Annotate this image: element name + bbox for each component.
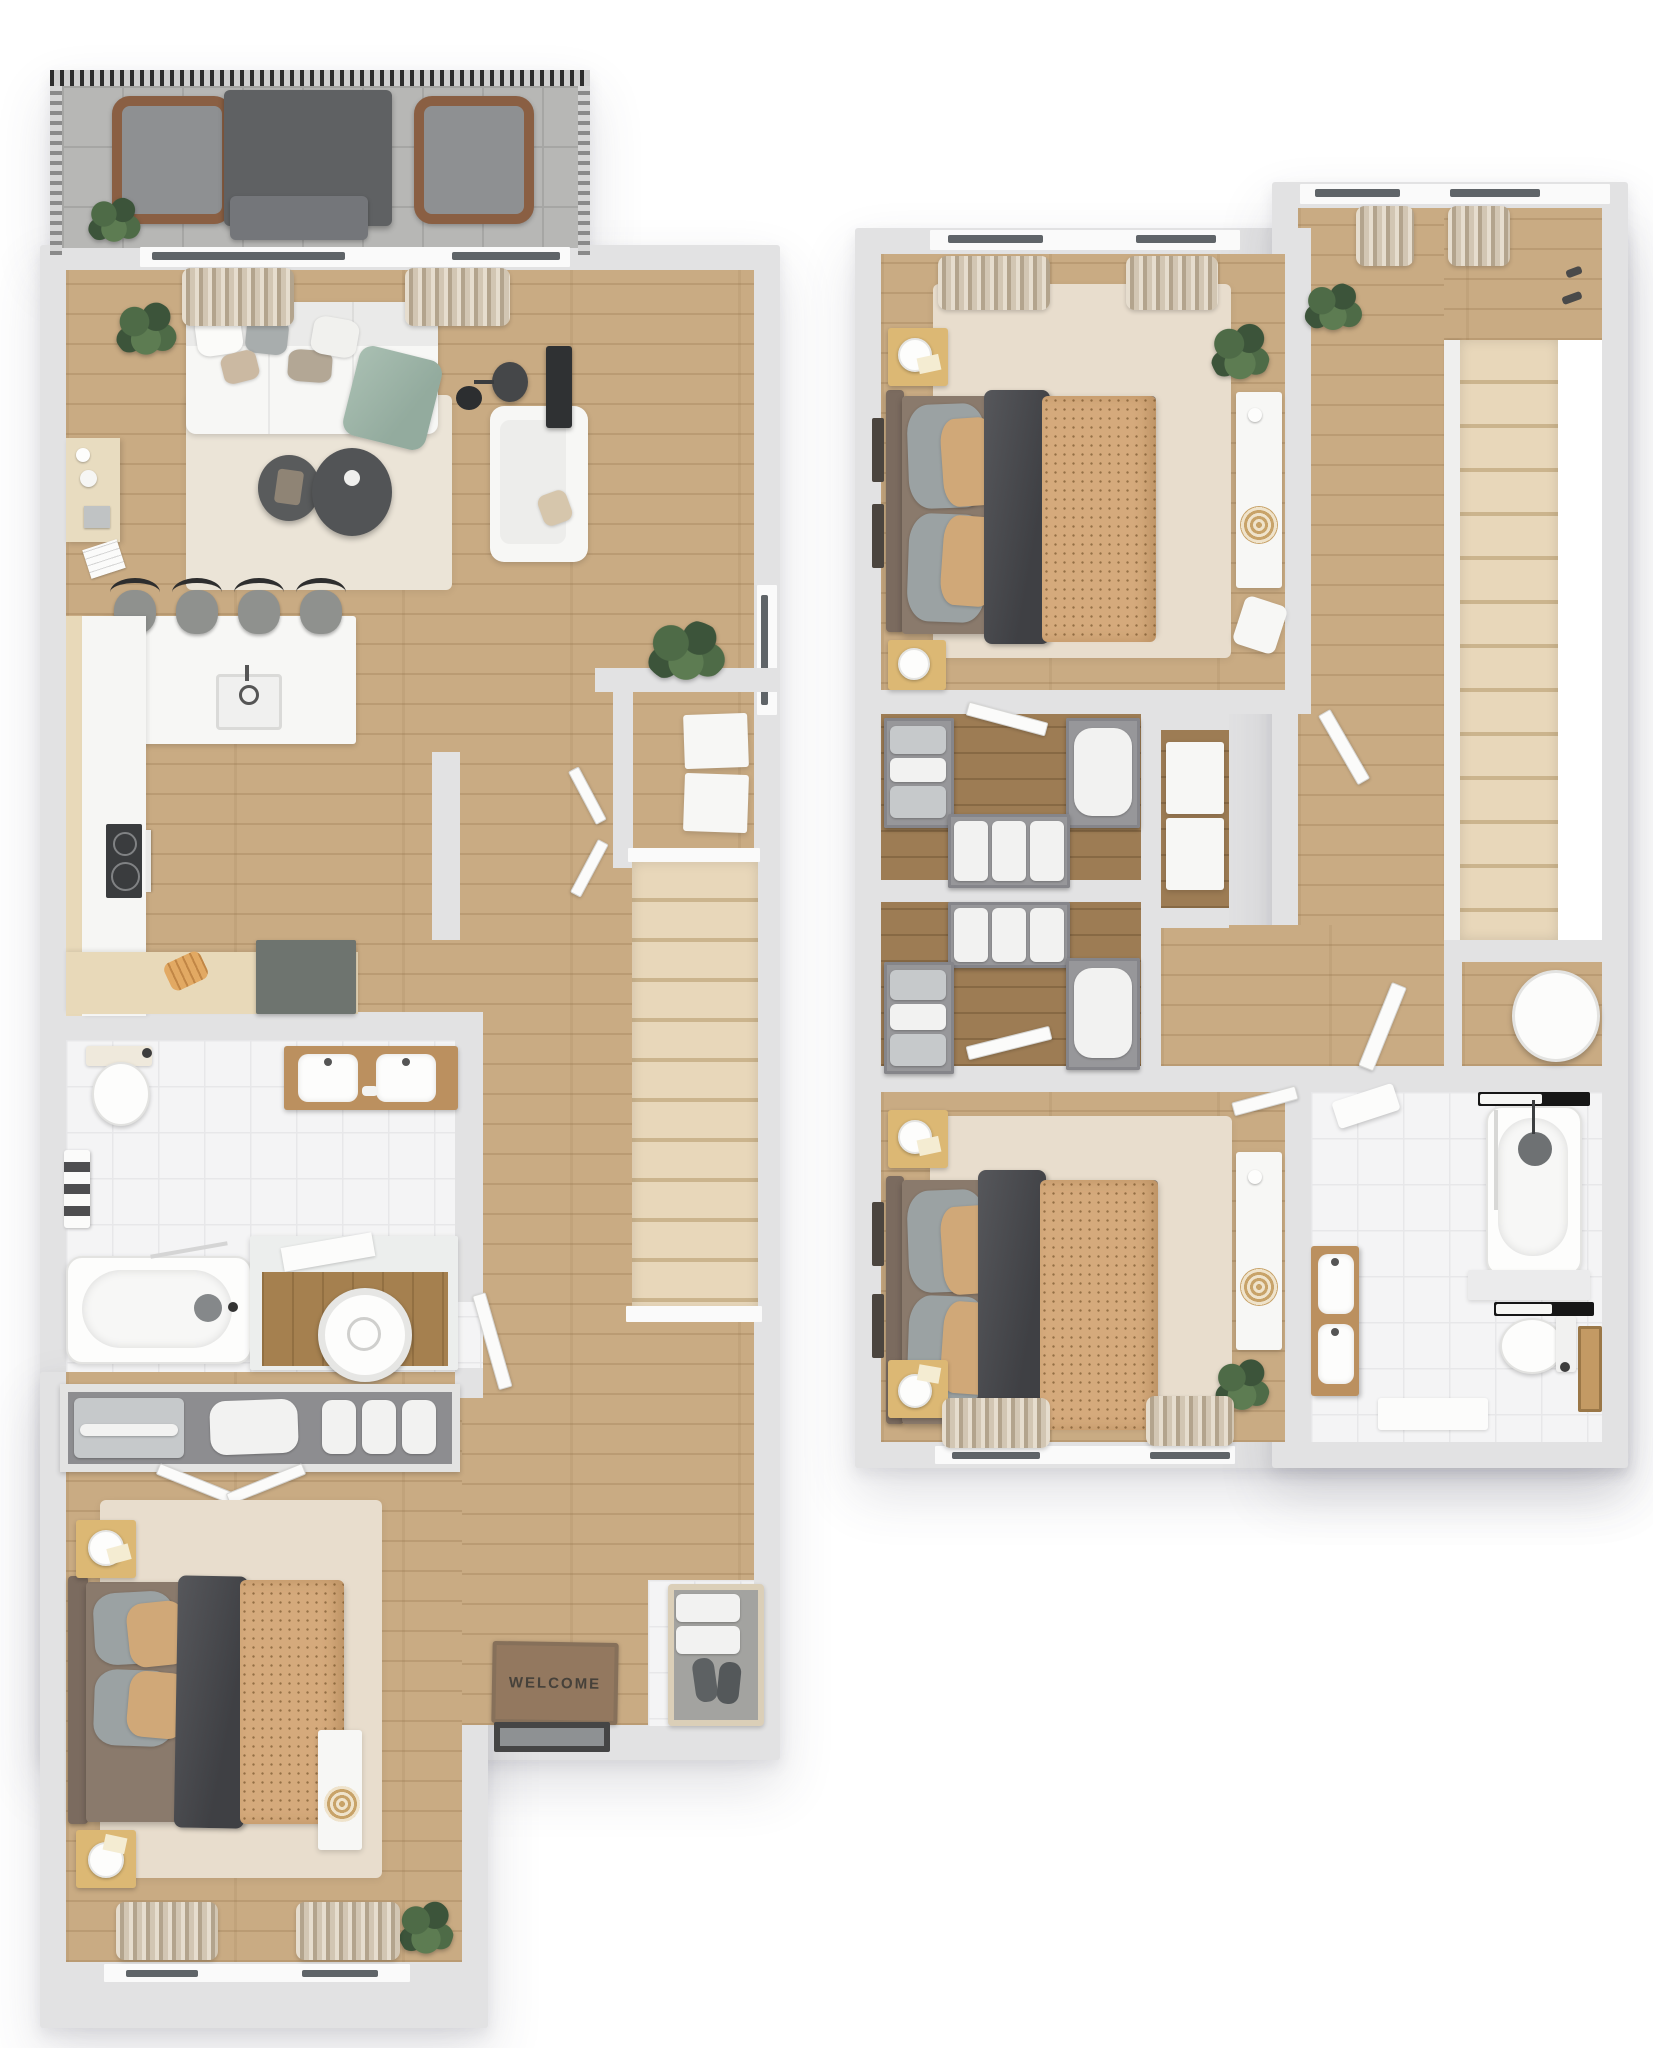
bedroom2-curtain-left	[938, 256, 1050, 310]
bathtub-1	[66, 1256, 252, 1364]
kitchen-faucet-ring	[239, 685, 259, 705]
bedroom2-desk-cup	[1248, 408, 1262, 422]
hallway-plant	[644, 620, 728, 684]
bedroom3-wall-art	[872, 1202, 884, 1266]
nightstand-paper	[917, 354, 942, 374]
towel-on-rail	[1496, 1304, 1552, 1314]
bathtub2-glass-screen	[1494, 1110, 1498, 1210]
stairwell-void	[1558, 340, 1602, 940]
bathroom1-vanity	[284, 1046, 458, 1110]
laundry-cabinet-lid	[281, 1232, 376, 1272]
landing-curtain-left	[1356, 206, 1414, 266]
vanity-soap-dish	[362, 1086, 378, 1096]
bar-stool-2	[174, 578, 220, 636]
bathtub-drain-icon	[194, 1294, 222, 1322]
entry-bench	[668, 1584, 764, 1726]
bedroom3-window-glass-left	[952, 1452, 1040, 1459]
bedroom2-nightstand-top	[888, 328, 948, 386]
bathroom2-floor-mat	[1378, 1398, 1488, 1430]
laundry-cabinet	[250, 1236, 458, 1370]
vanity2-faucet-icon	[1331, 1258, 1339, 1266]
vanity-faucet-left-icon	[324, 1058, 332, 1066]
closet-pillow	[1074, 728, 1132, 816]
closet-pillow	[1074, 968, 1132, 1058]
bathroom1-wall-right	[455, 1012, 483, 1302]
balcony-plant	[86, 196, 142, 246]
bedroom1-nightstand-bottom	[76, 1830, 136, 1888]
bed3-gray-blanket	[978, 1170, 1046, 1436]
entry-bench-towel-1	[676, 1594, 740, 1622]
closet2-shelf-middle	[948, 902, 1070, 968]
welcome-mat-text: WELCOME	[509, 1674, 602, 1693]
stair-nook-cube-stool-2	[683, 773, 749, 833]
balcony-railing-top	[50, 70, 590, 86]
bathroom1-wall-top	[40, 1012, 483, 1040]
storage-box-2	[1166, 818, 1224, 890]
wardrobe-roll-2	[362, 1400, 396, 1454]
storage-nook-wall-bottom	[1161, 908, 1229, 928]
side-table-black	[456, 386, 482, 410]
floor-plan-render: WELCOME	[0, 0, 1653, 2048]
stairs1-bottom-cap	[626, 1306, 762, 1322]
living-room-window-glass-right	[452, 252, 560, 260]
stair-nook-cube-stool-1	[683, 713, 749, 769]
bathtub2-ledge	[1468, 1270, 1590, 1300]
oven-handle	[146, 830, 151, 892]
bedroom3-nightstand-bottom	[888, 1360, 948, 1418]
bedroom3-wall-art	[872, 1294, 884, 1358]
stair-nook-wall-left	[613, 692, 633, 868]
toilet-bowl	[92, 1062, 150, 1126]
cooktop-burner-small-icon	[113, 832, 137, 856]
bathtub-faucet-icon	[228, 1302, 238, 1312]
stairs-to-second-floor	[632, 862, 758, 1310]
bed2-tan-duvet	[1042, 396, 1156, 642]
bedroom2-wall-art	[872, 504, 884, 568]
bedroom2-plant	[1210, 320, 1270, 386]
bedroom1-window-glass-right	[302, 1970, 378, 1977]
floor-lamp-shade	[492, 362, 528, 402]
washing-machine-door-icon	[318, 1288, 412, 1382]
bedroom3-jute-rug	[1240, 1268, 1278, 1306]
entry-door-threshold	[494, 1722, 610, 1752]
living-room-plant	[114, 300, 178, 360]
toilet-1	[86, 1046, 152, 1126]
closet-linen-stack	[1030, 908, 1064, 962]
bedroom1-headboard	[68, 1576, 88, 1824]
bed1-gray-blanket	[174, 1575, 248, 1828]
landing-window-glass-right	[1450, 189, 1540, 197]
lounge-chair-cushion	[500, 420, 566, 544]
welcome-mat: WELCOME	[491, 1641, 618, 1725]
living-room-window-glass-left	[152, 252, 345, 260]
wardrobe-roll-3	[402, 1400, 436, 1454]
bar-stool-seat	[300, 590, 342, 634]
bedroom1-nightstand-top	[76, 1520, 136, 1578]
bedroom2-desk	[1236, 392, 1282, 588]
bedroom2-wall-art	[872, 418, 884, 482]
balcony-railing-left	[50, 86, 62, 255]
closet-linen-stack	[954, 821, 988, 881]
closet2-shelf-left	[884, 962, 954, 1074]
bedroom2-window-glass-right	[1136, 235, 1216, 243]
entry-bench-towel-2	[676, 1626, 740, 1654]
bedroom2-nightstand-bottom	[888, 640, 946, 690]
closet-linen-stack	[890, 1034, 946, 1066]
toilet2-flush-button-icon	[1560, 1362, 1570, 1372]
toilet2-bowl	[1500, 1318, 1564, 1374]
kitchen-hall-partition	[432, 752, 460, 940]
bathroom1-towel-rack	[64, 1150, 90, 1228]
closet-linen-stack	[1030, 821, 1064, 881]
entry-boots-icon	[691, 1657, 719, 1704]
bedroom3-wall-right	[1285, 1066, 1311, 1468]
bedroom3-window-glass-right	[1150, 1452, 1230, 1459]
entry-door-panel	[500, 1728, 604, 1746]
bathtub-2	[1486, 1106, 1582, 1276]
kitchen-dark-cabinet	[256, 940, 356, 1014]
coffee-table-decor-cup	[344, 470, 360, 486]
landing-window-glass-left	[1315, 189, 1400, 197]
balcony-chair-right	[414, 96, 534, 224]
entry-boots-icon	[716, 1661, 742, 1705]
bathroom2-wood-art	[1578, 1326, 1602, 1412]
bedroom1-window-glass-left	[126, 1970, 198, 1977]
landing-plant	[1302, 282, 1364, 334]
closet1-shelf-middle	[948, 814, 1070, 888]
closet-linen-stack	[992, 821, 1026, 881]
bar-stool-seat	[176, 590, 218, 634]
bathroom2-towel-rail-bottom	[1494, 1302, 1594, 1316]
landing-curtain-right	[1448, 206, 1510, 266]
bedroom1-jute-rug	[324, 1786, 360, 1822]
bedroom1-curtain-right	[296, 1902, 400, 1960]
console-vase-2	[80, 470, 97, 487]
kitchen-sink	[216, 674, 282, 730]
closets-wall-right	[1141, 714, 1161, 1066]
closet-linen-stack	[890, 1004, 946, 1030]
bar-stool-4	[298, 578, 344, 636]
bedroom2-window-glass-left	[948, 235, 1043, 243]
bathroom2-vanity	[1311, 1246, 1359, 1396]
stairs1-landing-edge	[628, 848, 760, 862]
vanity2-faucet-icon	[1331, 1328, 1339, 1336]
media-speaker	[546, 346, 572, 428]
bedroom2-curtain-right	[1126, 256, 1218, 310]
closet1-shelf-left	[884, 718, 954, 828]
living-room-curtain-left	[182, 268, 294, 326]
console-vase-1	[76, 448, 90, 462]
floor-lamp-arm	[474, 380, 494, 384]
bed3-tan-duvet	[1040, 1180, 1158, 1430]
stairs-to-first-floor	[1460, 340, 1558, 940]
nightstand-paper	[917, 1136, 942, 1156]
bedroom3-curtain-left	[942, 1398, 1050, 1448]
bed2-gray-blanket	[984, 390, 1050, 644]
vanity-faucet-right-icon	[402, 1058, 410, 1066]
bedroom2-jute-rug	[1240, 506, 1278, 544]
closets-wall-top	[881, 690, 1285, 714]
bathtub2-shower-head-icon	[1518, 1132, 1552, 1166]
closet-linen-stack	[890, 786, 946, 818]
kitchen-faucet-stem	[245, 665, 249, 681]
bar-stool-3	[236, 578, 282, 636]
bedroom1-bed	[86, 1582, 344, 1822]
coffee-table-decor-book	[274, 468, 304, 505]
balcony-railing-right	[578, 86, 590, 255]
toilet-flush-button-icon	[142, 1048, 152, 1058]
bar-stool-seat	[238, 590, 280, 634]
cooktop-burner-large-icon	[111, 862, 140, 891]
closet2-shelf-right	[1066, 958, 1140, 1070]
stair2-railing-wall	[1444, 340, 1460, 940]
nightstand-lamp-icon	[898, 648, 930, 680]
wardrobe-pillow	[209, 1398, 299, 1455]
closet-linen-stack	[992, 908, 1026, 962]
closet-linen-stack	[954, 908, 988, 962]
storage-nook-wall-top	[1161, 714, 1229, 730]
water-heater	[1512, 970, 1600, 1062]
bedroom1-wardrobe	[60, 1384, 460, 1472]
bedroom3-desk-cup	[1248, 1170, 1262, 1184]
utility-wall-top	[1462, 940, 1602, 962]
cooktop	[106, 824, 142, 898]
closet-linen-stack	[890, 970, 946, 1000]
bedroom1-curtain-left	[116, 1902, 218, 1960]
storage-box-1	[1166, 742, 1224, 814]
bedroom3-nightstand-top	[888, 1110, 948, 1168]
toilet-2	[1500, 1316, 1576, 1372]
balcony-bench	[230, 196, 368, 240]
coffee-table-large	[312, 448, 392, 536]
wardrobe-roll-1	[322, 1400, 356, 1454]
closet-linen-stack	[890, 758, 946, 782]
washing-machine-drum-icon	[347, 1317, 381, 1351]
bedroom3-curtain-right	[1146, 1396, 1234, 1446]
wardrobe-gray-linens-fold	[80, 1424, 178, 1436]
bathtub2-hose	[1532, 1100, 1535, 1134]
floor2-cross-wall	[881, 1066, 1602, 1092]
closet1-shelf-right	[1066, 718, 1140, 828]
bedroom2-bed	[902, 396, 1156, 634]
utility-wall-left	[1444, 940, 1462, 1066]
closet-linen-stack	[890, 726, 946, 754]
bedroom1-plant	[398, 1898, 454, 1960]
living-room-curtain-right	[405, 268, 510, 326]
console-box	[84, 506, 110, 528]
